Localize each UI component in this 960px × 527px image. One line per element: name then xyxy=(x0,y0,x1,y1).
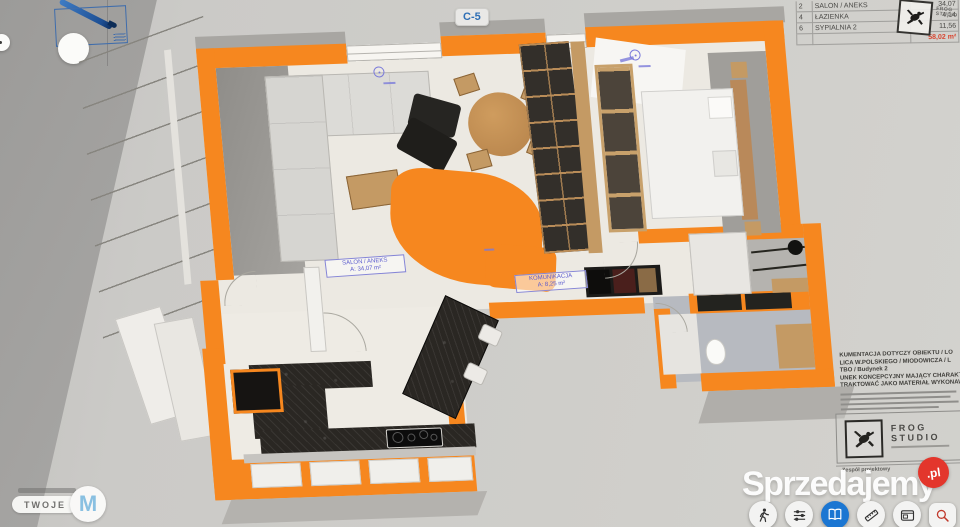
row-no: 6 xyxy=(797,23,813,34)
cabinet-front xyxy=(368,458,420,484)
area-table: 2 SALON / ANEKS 34,07 4 ŁAZIENKA 4,14 6 … xyxy=(796,0,959,45)
sliders-icon xyxy=(792,508,807,523)
studio-subtitle-line xyxy=(891,445,949,449)
window xyxy=(346,42,442,61)
unit-badge: C-5 xyxy=(455,8,489,26)
frog-icon xyxy=(849,424,880,455)
card-icon xyxy=(900,508,915,523)
measure-button[interactable] xyxy=(857,501,885,527)
walk-icon xyxy=(756,508,771,523)
viewer-canvas: SALON / ANEKS A: 34,07 m² KOMUNIKACJA A:… xyxy=(0,0,960,527)
zoom-search-button[interactable] xyxy=(929,503,956,527)
row-no: 2 xyxy=(797,1,813,12)
wardrobe-panel xyxy=(688,232,751,296)
display-settings-button[interactable] xyxy=(785,501,813,527)
ruler-icon xyxy=(864,508,879,523)
nightstand xyxy=(730,62,747,79)
floorplan-card-button[interactable] xyxy=(893,501,921,527)
sideboard-box-wood xyxy=(637,268,657,293)
wall-face xyxy=(698,386,854,423)
cabinet-front xyxy=(427,456,473,481)
frog-icon xyxy=(901,3,929,31)
row-no: 4 xyxy=(797,12,813,23)
notes-block: KUMENTACJA DOTYCZY OBIEKTU / LO LICA W.P… xyxy=(839,349,960,410)
pillow xyxy=(707,96,733,119)
cabinet-front xyxy=(309,460,361,486)
cabinet-front xyxy=(250,462,302,488)
title-block: FROG STUDIO xyxy=(835,410,960,463)
watermark-text: Sprzedajemy xyxy=(742,465,935,504)
bath-cabinet xyxy=(775,324,815,369)
stamp-text: FROG STUDIO xyxy=(935,7,958,19)
glass-panel xyxy=(745,292,792,310)
open-book-icon xyxy=(827,507,843,523)
floor-plan: SALON / ANEKS A: 34,07 m² KOMUNIKACJA A:… xyxy=(163,0,856,519)
magnifier-icon xyxy=(935,508,950,523)
catalog-button[interactable] xyxy=(821,501,849,527)
annotation-mark xyxy=(639,65,651,67)
row-no xyxy=(797,34,813,45)
agency-initial: M xyxy=(70,486,106,522)
closet-bench xyxy=(771,278,808,293)
studio-line2: STUDIO xyxy=(891,432,940,443)
fine-print-line xyxy=(840,395,950,400)
row-name xyxy=(813,32,911,45)
kitchen-niche xyxy=(230,368,284,414)
burner xyxy=(430,434,438,441)
agency-name: TWOJE xyxy=(12,496,78,513)
studio-name: FROG STUDIO xyxy=(891,422,941,443)
frog-stamp xyxy=(897,0,934,36)
pillow xyxy=(712,150,738,177)
frog-logo-box xyxy=(845,419,884,458)
markup-hatch xyxy=(113,33,125,42)
agency-tagline xyxy=(18,488,76,493)
fine-print-line xyxy=(840,390,956,395)
annotation-mark xyxy=(383,82,395,84)
fine-print-line xyxy=(841,400,959,405)
nightstand xyxy=(744,221,761,236)
viewer-toolbar xyxy=(749,501,956,527)
walk-mode-button[interactable] xyxy=(749,501,777,527)
annotation-mark xyxy=(484,249,494,251)
glass-panel xyxy=(697,294,742,311)
